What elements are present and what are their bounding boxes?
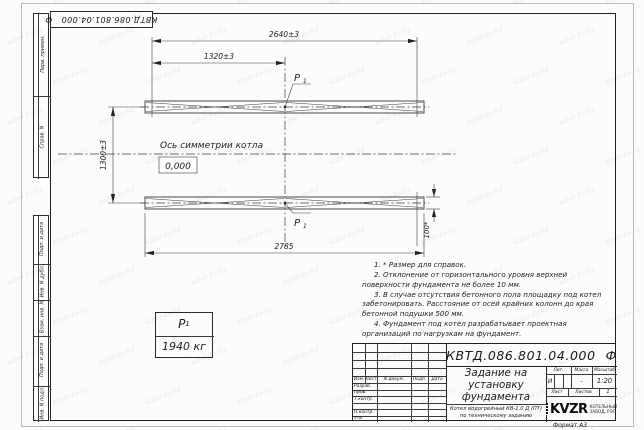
format-label: Формат А3 bbox=[520, 421, 620, 429]
tb-col-izm: Изм. bbox=[353, 376, 365, 383]
sheets-value: 1 bbox=[599, 388, 617, 396]
doc-title-line: Задание на bbox=[465, 367, 527, 379]
mass-value: - bbox=[571, 374, 592, 388]
side-cell-inv-podl: Инв. N подл. bbox=[36, 385, 49, 421]
side-label: Инв. N дубл. bbox=[40, 265, 46, 298]
kvzr-logo-text: KVZR bbox=[550, 402, 588, 417]
tb-col-ndok: N докум. bbox=[377, 376, 411, 383]
side-label: Подп. и дата bbox=[40, 343, 46, 377]
top-stamp: КВТД.086.801.04.000 Ф bbox=[50, 11, 153, 28]
tb-col-podp: Подп. bbox=[411, 376, 428, 383]
side-cell-podp-data-2: Подп. и дата bbox=[36, 335, 49, 385]
side-label: Инв. N подл. bbox=[40, 386, 46, 419]
load-sym-text: P bbox=[178, 317, 185, 331]
load-table-symbol: P1 bbox=[155, 312, 213, 335]
kvzr-logo-sub: КОТЕЛЬНЫЙ ЗАВОД, РЭП bbox=[590, 404, 617, 415]
doc-title-line: фундамента bbox=[462, 391, 530, 403]
lit-value: И bbox=[546, 374, 554, 388]
scale-header: Масштаб bbox=[592, 366, 617, 374]
company-logo-cell: KVZR КОТЕЛЬНЫЙ ЗАВОД, РЭП bbox=[546, 396, 617, 422]
scale-value: 1:20 bbox=[592, 374, 617, 388]
note-2: 2. Отклонение от горизонтального уровня … bbox=[362, 270, 614, 289]
product-name-line: по техническому заданию bbox=[460, 413, 532, 420]
title-block: Изм. Лист N докум. Подп. Дата Разраб. Пр… bbox=[352, 343, 616, 421]
load-table-value: 1940 кг bbox=[155, 335, 213, 358]
doc-title-line: установку bbox=[468, 379, 523, 391]
doc-number-cell: КВТД.086.801.04.000 Ф bbox=[446, 344, 617, 366]
load-sub-text: 1 bbox=[185, 320, 189, 328]
product-name-cell: Котел водогрейный КВ-1,0 Д (ПТ) по техни… bbox=[446, 404, 546, 422]
sheets-label: Листов bbox=[568, 388, 599, 396]
product-name-line: Котел водогрейный КВ-1,0 Д (ПТ) bbox=[450, 406, 542, 413]
tb-col-data: Дата bbox=[428, 376, 446, 383]
lit-header: Лит. bbox=[546, 366, 571, 374]
tb-col-list: Лист bbox=[365, 376, 377, 383]
side-label: Подп. и дата bbox=[40, 222, 46, 256]
doc-number: КВТД.086.801.04.000 bbox=[446, 348, 596, 363]
side-cell-podp-data-1: Подп. и дата bbox=[36, 215, 49, 263]
sheet-label: Лист bbox=[546, 388, 568, 396]
side-label: Перв. примен. bbox=[40, 35, 46, 73]
top-stamp-text: КВТД.086.801.04.000 Ф bbox=[45, 15, 157, 24]
mass-header: Масса bbox=[571, 366, 592, 374]
side-cell-sprav-n: Справ. N bbox=[36, 95, 49, 178]
side-cell-vzam-inv: Взам. инв. N bbox=[36, 299, 49, 335]
stamp-doc-number: КВТД.086.801.04.000 bbox=[62, 15, 158, 24]
note-1: 1. * Размер для справок. bbox=[362, 260, 614, 269]
side-cell-perv-primen: Перв. примен. bbox=[36, 13, 49, 95]
note-3: 3. В случае отсутствия бетонного пола пл… bbox=[362, 290, 614, 318]
side-label: Взам. инв. N bbox=[40, 301, 46, 334]
drawing-sheet: kotel-kv.kzkotel-kv.kzkotel-kv.kzkotel-k… bbox=[0, 0, 644, 430]
doc-title-cell: Задание на установку фундамента bbox=[446, 366, 546, 404]
notes-block: 1. * Размер для справок. 2. Отклонение о… bbox=[362, 260, 614, 339]
side-label: Справ. N bbox=[40, 125, 46, 148]
doc-suffix: Ф bbox=[606, 348, 617, 363]
load-value-text: 1940 кг bbox=[162, 340, 206, 353]
kvzr-logo-icon bbox=[546, 403, 548, 415]
side-cell-inv-dubl: Инв. N дубл. bbox=[36, 263, 49, 299]
note-4: 4. Фундамент под котел разрабатывает про… bbox=[362, 319, 614, 338]
tb-row-utv: Утв. bbox=[353, 416, 377, 423]
